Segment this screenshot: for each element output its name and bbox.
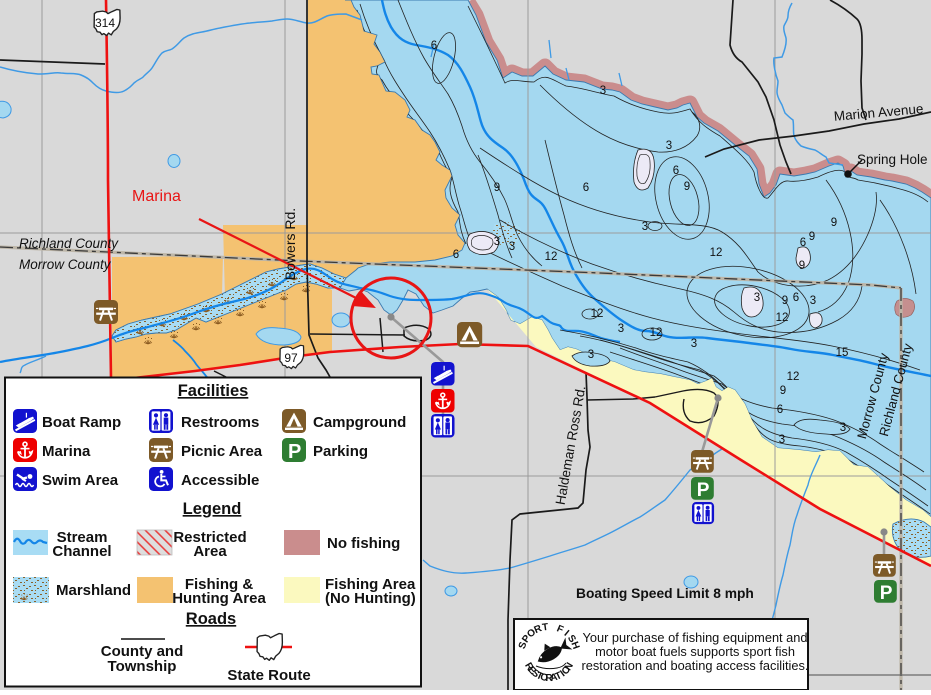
svg-text:Roads: Roads [186,610,236,628]
svg-text:Marshland: Marshland [56,582,131,599]
svg-text:motor boat fuels supports spor: motor boat fuels supports sport fish [595,644,795,659]
svg-text:3: 3 [600,85,606,97]
svg-text:6: 6 [431,40,437,52]
svg-text:Richland County: Richland County [19,236,119,251]
svg-text:Channel: Channel [52,543,111,560]
svg-text:Spring Hole: Spring Hole [857,152,928,167]
svg-text:3: 3 [509,241,515,253]
svg-text:3: 3 [618,323,624,335]
svg-text:Parking: Parking [313,443,368,460]
svg-text:Marina: Marina [42,443,91,460]
svg-text:Legend: Legend [183,500,242,518]
svg-text:3: 3 [779,434,785,446]
svg-text:Facilities: Facilities [178,382,249,400]
svg-text:12: 12 [787,371,800,383]
svg-text:9: 9 [782,295,788,307]
svg-text:3: 3 [754,292,760,304]
svg-text:Morrow County: Morrow County [19,257,112,272]
svg-text:Marina: Marina [132,188,181,205]
svg-text:(No Hunting): (No Hunting) [325,590,416,607]
svg-text:12: 12 [545,251,558,263]
svg-text:9: 9 [780,385,786,397]
svg-text:3: 3 [494,236,500,248]
svg-text:3: 3 [588,349,594,361]
svg-text:12: 12 [710,247,723,259]
svg-text:Your purchase of fishing equip: Your purchase of fishing equipment and [582,630,807,645]
svg-text:Campground: Campground [313,414,406,431]
svg-text:Hunting Area: Hunting Area [172,590,266,607]
svg-text:97: 97 [284,351,298,365]
svg-text:6: 6 [800,237,806,249]
svg-text:15: 15 [836,347,849,359]
svg-text:Boat Ramp: Boat Ramp [42,414,121,431]
svg-text:3: 3 [810,295,816,307]
svg-text:3: 3 [642,221,648,233]
svg-text:9: 9 [799,260,805,272]
svg-text:9: 9 [809,231,815,243]
svg-text:restoration and boating access: restoration and boating access facilitie… [582,658,809,673]
svg-text:Accessible: Accessible [181,472,259,489]
svg-text:9: 9 [494,182,500,194]
svg-text:Restrooms: Restrooms [181,414,259,431]
svg-text:12: 12 [591,308,604,320]
svg-text:9: 9 [831,217,837,229]
svg-text:3: 3 [666,140,672,152]
svg-text:No fishing: No fishing [327,535,400,552]
svg-text:12: 12 [776,312,789,324]
svg-text:3: 3 [840,422,846,434]
svg-text:6: 6 [793,292,799,304]
svg-text:Swim Area: Swim Area [42,472,119,489]
svg-text:Area: Area [193,543,227,560]
svg-text:Picnic Area: Picnic Area [181,443,263,460]
svg-text:Bowers Rd.: Bowers Rd. [282,208,298,280]
svg-text:9: 9 [684,181,690,193]
svg-text:Boating Speed Limit 8 mph: Boating Speed Limit 8 mph [576,586,754,601]
svg-text:6: 6 [777,404,783,416]
svg-text:3: 3 [691,338,697,350]
svg-text:6: 6 [583,182,589,194]
svg-text:314: 314 [95,16,115,30]
svg-text:12: 12 [650,327,663,339]
svg-text:Township: Township [108,658,177,675]
svg-text:6: 6 [453,249,459,261]
svg-text:State Route: State Route [227,667,310,684]
svg-text:6: 6 [673,165,679,177]
